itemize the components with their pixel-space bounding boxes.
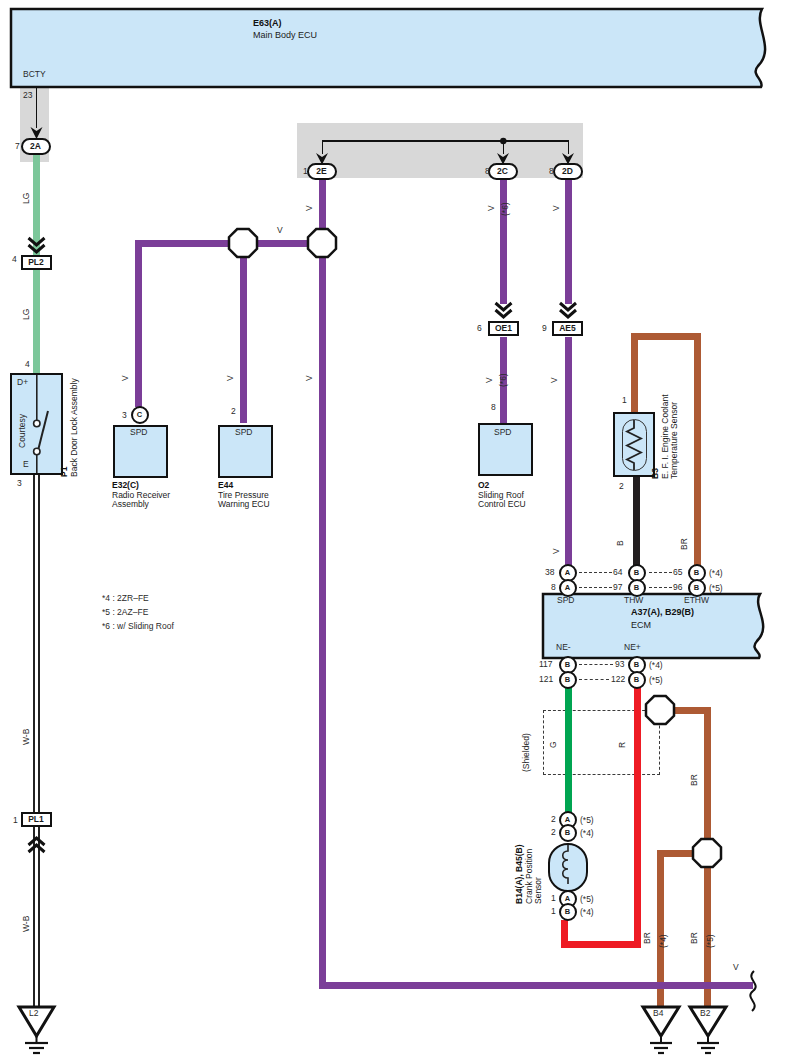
wire-break-icon bbox=[750, 971, 755, 1011]
pin-1-2e: 1 bbox=[303, 167, 308, 176]
crank-pin-1b-note: (*4) bbox=[580, 908, 594, 917]
pin-1-b3: 1 bbox=[622, 396, 627, 405]
e44-caption: E44 Tire Pressure Warning ECU bbox=[218, 481, 270, 510]
note-star4: *4 : 2ZR–FE bbox=[102, 594, 149, 603]
connector-2e: 2E bbox=[307, 163, 337, 180]
ecm-terminal-ne-plus: NE+ bbox=[624, 643, 641, 652]
crank-pin-2a-note: (*5) bbox=[580, 816, 594, 825]
ecm-name: ECM bbox=[631, 620, 651, 630]
pin-8-o2: 8 bbox=[491, 403, 496, 412]
connector-2d: 2D bbox=[553, 163, 583, 180]
wire-br-note-b2: (*5) bbox=[706, 934, 715, 948]
ecm-pin-121-circle: B bbox=[559, 671, 577, 689]
ecm-pin-8: 8 bbox=[551, 583, 556, 592]
e63-terminal-bcty: BCTY bbox=[23, 70, 46, 79]
wire-r-label: R bbox=[618, 742, 627, 748]
junction-shield-icon bbox=[646, 696, 674, 724]
wire-wb-label-2: W-B bbox=[22, 916, 31, 932]
wire-s6-label-2c: (*6) bbox=[501, 202, 510, 216]
connector-ae5: AE5 bbox=[552, 321, 583, 336]
crank-pin-1b-num: 1 bbox=[551, 907, 556, 916]
wire-g-label: G bbox=[549, 741, 558, 748]
pin-4-pl2: 4 bbox=[12, 255, 17, 264]
pin-4-p1: 4 bbox=[25, 360, 30, 369]
e44-port-spd: SPD bbox=[235, 428, 252, 437]
ecm-terminal-spd: SPD bbox=[557, 596, 574, 605]
e63-id: E63(A) bbox=[253, 18, 282, 28]
wire-br-label-b2: BR bbox=[690, 932, 699, 944]
wire-v-label-ae5: V bbox=[550, 377, 559, 383]
ground-l2-label: L2 bbox=[29, 1009, 38, 1018]
junction-j2-icon bbox=[229, 229, 257, 257]
wire-v-label-2e: V bbox=[305, 205, 314, 211]
wire-v-label-bottom: V bbox=[733, 963, 739, 972]
ecm-pin-122-circle: B bbox=[628, 671, 646, 689]
ground-b2-label: B2 bbox=[700, 1009, 710, 1018]
ecm-pin-65-note: (*4) bbox=[709, 569, 723, 578]
pin-8-2c: 8 bbox=[485, 167, 490, 176]
o2-port-spd: SPD bbox=[494, 428, 511, 437]
ground-b4-label: B4 bbox=[653, 1009, 663, 1018]
crank-pin-1a-note: (*5) bbox=[580, 895, 594, 904]
pin-3-p1: 3 bbox=[17, 479, 22, 488]
b3-caption: B3 E. F. I. Engine Coolant Temperature S… bbox=[651, 394, 680, 479]
crank-pin-2b-note: (*4) bbox=[580, 829, 594, 838]
p1-caption: P1 Back Door Lock Assembly bbox=[60, 378, 79, 477]
courtesy-switch-icon bbox=[34, 375, 48, 473]
ecm-pin-121: 121 bbox=[539, 675, 553, 684]
ecm-pin-96: 96 bbox=[673, 583, 682, 592]
p1-terminal-e: E bbox=[23, 460, 29, 469]
wire-br-label-b4: BR bbox=[643, 932, 652, 944]
chevron-up-pl1-icon bbox=[29, 838, 45, 852]
o2-caption-line2: Control ECU bbox=[478, 500, 526, 510]
chevron-down-ae5-icon bbox=[560, 303, 576, 317]
note-star6: *6 : w/ Sliding Roof bbox=[102, 622, 174, 631]
chevron-down-oe1-icon bbox=[496, 303, 512, 317]
p1-switch-label: Courtesy bbox=[18, 414, 27, 448]
resistor-icon bbox=[627, 420, 641, 470]
ecm-pin-65: 65 bbox=[673, 568, 682, 577]
note-star5: *5 : 2AZ–FE bbox=[102, 608, 148, 617]
connector-c-e32: C bbox=[131, 406, 149, 424]
ecm-pin-122-note: (*5) bbox=[649, 676, 663, 685]
wire-v-label-2c: V bbox=[487, 205, 496, 211]
o2-caption: O2 Sliding Roof Control ECU bbox=[478, 481, 526, 510]
e32-caption-line2: Assembly bbox=[112, 500, 170, 510]
wire-v-label-e44: V bbox=[226, 375, 235, 381]
wire-v-label-e32: V bbox=[121, 375, 130, 381]
ecm-pin-93-note: (*4) bbox=[649, 661, 663, 670]
crank-caption-line2: Sensor bbox=[534, 844, 544, 904]
pin-2-b3: 2 bbox=[619, 482, 624, 491]
pin-23: 23 bbox=[23, 91, 32, 100]
junction-ground-icon bbox=[693, 839, 721, 867]
wire-b-label: B bbox=[616, 540, 625, 546]
coil-icon bbox=[563, 845, 568, 884]
connector-2a: 2A bbox=[21, 138, 51, 155]
junction-j1-icon bbox=[308, 229, 336, 257]
wire-v-label-horiz: V bbox=[277, 226, 283, 235]
pin-9-ae5: 9 bbox=[542, 324, 547, 333]
wire-wb-label-1: W-B bbox=[22, 729, 31, 745]
crank-pin-1b-circle: B bbox=[559, 903, 577, 921]
e63-name: Main Body ECU bbox=[253, 30, 317, 40]
pin-2-e44: 2 bbox=[231, 407, 236, 416]
ecm-terminal-thw: THW bbox=[624, 596, 643, 605]
symbol-layer bbox=[0, 0, 789, 1063]
chevron-down-pl2-icon bbox=[29, 238, 45, 252]
ecm-pin-96-circle: B bbox=[688, 579, 706, 597]
ecm-pin-8-circle: A bbox=[559, 579, 577, 597]
crank-pin-2b-circle: B bbox=[559, 824, 577, 842]
p1-name: Back Door Lock Assembly bbox=[70, 378, 80, 477]
shield-label: (Shielded) bbox=[522, 733, 531, 772]
wire-s6-label-o2: (*6) bbox=[499, 373, 508, 387]
connector-oe1: OE1 bbox=[488, 321, 519, 336]
wire-lg-label-1: LG bbox=[22, 193, 31, 204]
crank-pin-1a-num: 1 bbox=[551, 894, 556, 903]
ecm-pin-64: 64 bbox=[613, 568, 622, 577]
crank-caption: B14(A), B45(B) Crank Position Sensor bbox=[515, 844, 544, 904]
ecm-pin-97-circle: B bbox=[628, 579, 646, 597]
ecm-pin-96-note: (*5) bbox=[709, 584, 723, 593]
ecm-id: A37(A), B29(B) bbox=[631, 607, 694, 617]
wire-v-label-o2: V bbox=[485, 377, 494, 383]
ecm-pin-38: 38 bbox=[545, 568, 554, 577]
pin-7: 7 bbox=[15, 142, 20, 151]
wire-br-note-b4: (*4) bbox=[659, 934, 668, 948]
ecm-pin-97: 97 bbox=[613, 583, 622, 592]
p1-terminal-dplus: D+ bbox=[17, 378, 28, 387]
ecm-pin-93: 93 bbox=[615, 660, 624, 669]
ecm-pin-117: 117 bbox=[539, 660, 553, 669]
crank-pin-2a-num: 2 bbox=[551, 815, 556, 824]
wiring-diagram: 2A2E2C2DPL2PL1OE1AE5CABBABBBBBBABAB E63(… bbox=[0, 0, 789, 1063]
e32-port-spd: SPD bbox=[130, 428, 147, 437]
ecm-pin-122: 122 bbox=[611, 675, 625, 684]
pin-6-oe1: 6 bbox=[477, 324, 482, 333]
ecm-terminal-ne-minus: NE- bbox=[556, 643, 571, 652]
pin-8-2d: 8 bbox=[549, 167, 554, 176]
wire-v-label-2d: V bbox=[552, 205, 561, 211]
e44-caption-line2: Warning ECU bbox=[218, 500, 270, 510]
wire-br-label-b3: BR bbox=[680, 538, 689, 550]
e32-caption: E32(C) Radio Receiver Assembly bbox=[112, 481, 170, 510]
ecm-terminal-ethw: ETHW bbox=[684, 596, 709, 605]
wire-v-label-2e-low: V bbox=[305, 375, 314, 381]
pin-3-e32: 3 bbox=[122, 411, 127, 420]
connector-pl2: PL2 bbox=[21, 255, 52, 270]
pin-1-pl1: 1 bbox=[13, 816, 18, 825]
wire-lg-label-2: LG bbox=[22, 309, 31, 320]
b3-caption-line2: Temperature Sensor bbox=[670, 394, 680, 479]
connector-2c: 2C bbox=[488, 163, 518, 180]
crank-pin-2b-num: 2 bbox=[551, 828, 556, 837]
wire-v-label-spd: V bbox=[552, 548, 561, 554]
wire-br-label-shield: BR bbox=[690, 774, 699, 786]
connector-pl1: PL1 bbox=[21, 812, 52, 827]
bus-junction-dot bbox=[500, 138, 506, 144]
